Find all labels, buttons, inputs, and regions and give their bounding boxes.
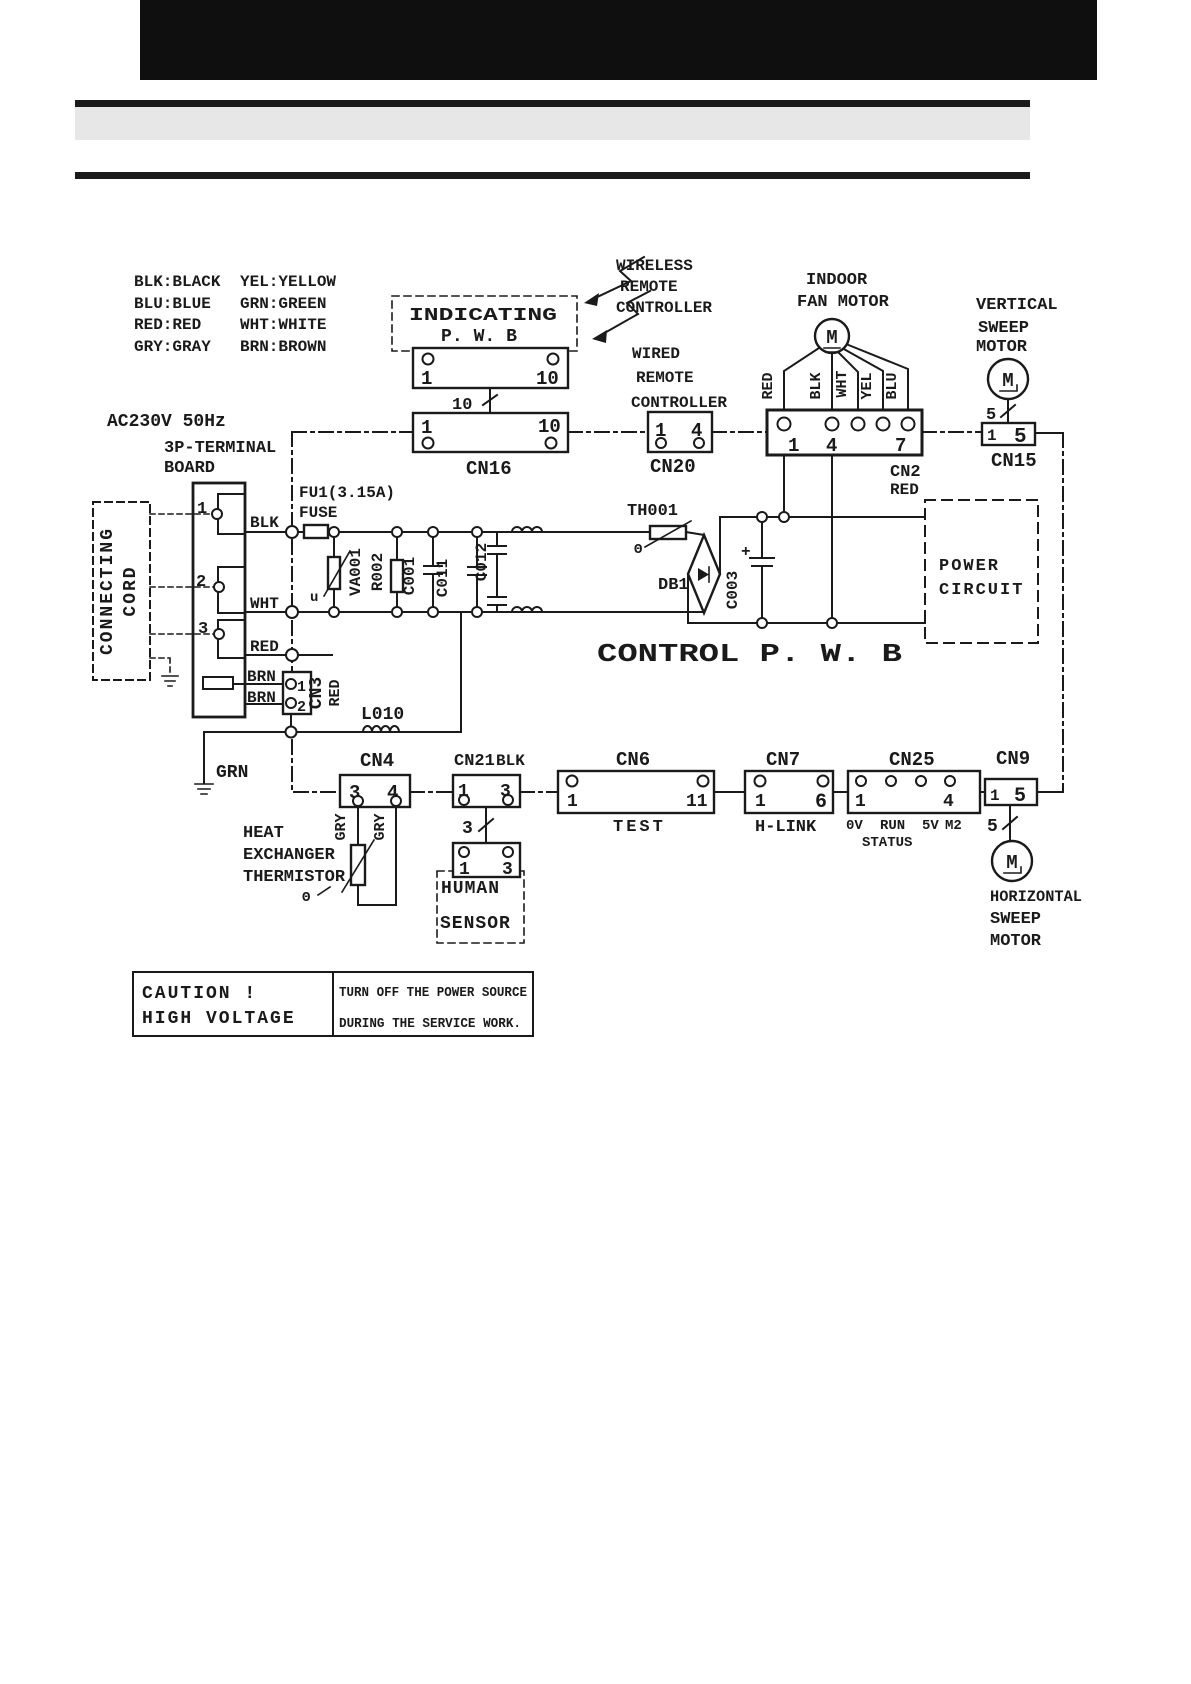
legend-item: BLK:BLACK	[134, 273, 221, 291]
pin-circle	[353, 796, 363, 806]
pin-number: 7	[895, 435, 906, 457]
cn7-label: CN7	[766, 749, 800, 771]
cn3-color: RED	[327, 679, 344, 706]
junction	[329, 527, 339, 537]
junction	[392, 607, 402, 617]
pin-circle	[886, 776, 896, 786]
pin-circle	[826, 418, 839, 431]
title-band	[75, 107, 1030, 140]
pin-circle	[459, 847, 469, 857]
terminal-number: 1	[197, 500, 207, 519]
wired-remote-label: REMOTE	[636, 369, 694, 387]
wire-color-tag: YEL	[859, 372, 876, 399]
wire-color-tag: WHT	[250, 595, 279, 613]
wire-color-tag: RED	[250, 638, 279, 656]
fuse-icon	[304, 525, 328, 538]
human-sensor-label: SENSOR	[440, 914, 511, 934]
cn25-signal: 5V	[922, 818, 939, 834]
cn2-label: CN2	[890, 463, 921, 482]
indicating-pwb: INDICATING P. W. B 1 10 10	[392, 296, 577, 415]
ac-rating: AC230V 50Hz	[107, 412, 226, 432]
theta-symbol: Θ	[302, 890, 310, 906]
cn6-label: CN6	[616, 749, 650, 771]
cn25-signal: RUN	[880, 818, 905, 834]
caution-title: HIGH VOLTAGE	[142, 1009, 296, 1029]
cn21-label: CN21	[454, 752, 495, 771]
wire-color-tag: GRN	[216, 763, 248, 783]
pin-circle	[902, 418, 915, 431]
bundle-count: 5	[987, 817, 998, 837]
terminal-screw	[212, 509, 222, 519]
pin-circle	[694, 438, 704, 448]
junction	[779, 512, 789, 522]
cn25-connector	[848, 771, 980, 813]
legend-item: GRN:GREEN	[240, 295, 326, 313]
mains-input: AC230V 50Hz 3P-TERMINAL BOARD CONNECTING…	[93, 412, 279, 717]
motor-m: M	[1006, 852, 1017, 874]
cn25-signal: M2	[945, 818, 962, 834]
pin-circle	[286, 698, 296, 708]
color-legend: BLK:BLACK BLU:BLUE RED:RED GRY:GRAY YEL:…	[134, 273, 336, 356]
l010-label: L010	[361, 705, 404, 725]
pin-circle	[755, 776, 766, 787]
human-sensor-label: HUMAN	[441, 879, 500, 899]
indicating-pwb-title: INDICATING	[409, 306, 557, 326]
heat-exchanger-label: THERMISTOR	[243, 868, 346, 887]
junction	[757, 618, 767, 628]
wired-remote-controller: WIRED REMOTE CONTROLLER 1 4 CN20	[631, 345, 727, 478]
legend-item: BRN:BROWN	[240, 338, 326, 356]
pin-circle	[567, 776, 578, 787]
pin-number: 6	[815, 791, 827, 814]
legend-item: WHT:WHITE	[240, 316, 326, 334]
legend-item: GRY:GRAY	[134, 338, 211, 356]
terminal-number: 3	[198, 620, 208, 639]
ground-icon	[195, 784, 213, 794]
pin-circle	[778, 418, 791, 431]
pin-circle	[548, 354, 559, 365]
header-bar	[140, 0, 1097, 80]
power-circuit-label: POWER	[939, 557, 1000, 576]
cn9-label: CN9	[996, 748, 1030, 770]
wire-color-tag: GRY	[372, 813, 389, 840]
horizontal-sweep-label: SWEEP	[990, 910, 1041, 929]
pin-circle	[916, 776, 926, 786]
terminal-number: 2	[196, 573, 206, 592]
pwb-terminal	[286, 606, 298, 618]
arrow-head-icon	[584, 293, 599, 306]
pin-number: 5	[1014, 785, 1026, 808]
th001-label: TH001	[627, 502, 678, 521]
pin-number: 1	[788, 435, 799, 457]
heat-exchanger-label: HEAT	[243, 824, 284, 843]
indoor-fan-label: INDOOR	[806, 271, 868, 290]
cn25-signal: STATUS	[862, 835, 912, 851]
pwb-terminal	[286, 649, 298, 661]
cn25-signal: 0V	[846, 818, 863, 834]
component-label: C012	[473, 543, 491, 581]
horizontal-sweep-label: HORIZONTAL	[990, 888, 1082, 906]
junction	[757, 512, 767, 522]
caution-text: TURN OFF THE POWER SOURCE	[339, 985, 527, 1001]
manual-page: BLK:BLACK BLU:BLUE RED:RED GRY:GRAY YEL:…	[0, 0, 1191, 1684]
pin-circle	[856, 776, 866, 786]
pin-number: 2	[297, 699, 306, 716]
pin-circle	[459, 795, 469, 805]
wireless-remote-callout: WIRELESS REMOTE CONTROLLER	[584, 257, 712, 343]
terminal-screw	[214, 582, 224, 592]
cn25-label: CN25	[889, 749, 935, 771]
wire-color-tag: GRY	[333, 813, 350, 840]
pin-number: 1	[297, 679, 306, 696]
pin-circle	[852, 418, 865, 431]
component-label: C011	[434, 559, 452, 597]
pin-circle	[656, 438, 666, 448]
junction	[286, 727, 297, 738]
legend-item: YEL:YELLOW	[240, 273, 336, 291]
pin-circle	[423, 438, 434, 449]
pin-number: 1	[567, 792, 578, 812]
pin-circle	[391, 796, 401, 806]
electrolytic-capacitor-icon	[750, 517, 774, 623]
pin-number: 10	[538, 416, 561, 438]
component-label: R002	[369, 553, 387, 591]
indoor-fan-label: FAN MOTOR	[797, 293, 890, 312]
legend-item: BLU:BLUE	[134, 295, 211, 313]
plus-sign: +	[741, 543, 751, 561]
cn3-section: 1 2 CN3 RED L010 GRN	[195, 612, 461, 794]
indoor-fan-motor: INDOOR FAN MOTOR M RED BLK WHT YEL BLU 1…	[760, 271, 922, 618]
ground-icon	[162, 676, 178, 686]
pin-circle	[503, 795, 513, 805]
pin-number: 1	[987, 427, 997, 445]
fuse-label: FUSE	[299, 504, 337, 522]
cn2-color: RED	[890, 481, 919, 499]
junction	[392, 527, 402, 537]
pin-circle	[286, 679, 296, 689]
cn7-function: H-LINK	[755, 818, 817, 837]
indicating-pwb-title2: P. W. B	[441, 327, 517, 347]
horizontal-sweep-motor: 5 M HORIZONTAL SWEEP MOTOR	[987, 805, 1082, 951]
pin-circle	[818, 776, 829, 787]
vertical-sweep-label: MOTOR	[976, 338, 1028, 357]
cn15-label: CN15	[991, 450, 1037, 472]
terminal-link	[203, 677, 233, 689]
legend-item: RED:RED	[134, 316, 201, 334]
vertical-sweep-label: VERTICAL	[976, 296, 1058, 315]
component-label: VA001	[347, 548, 365, 596]
pin-circle	[423, 354, 434, 365]
cn3-label: CN3	[307, 677, 327, 709]
wireless-remote-label: REMOTE	[620, 278, 678, 296]
db1-label: DB1	[658, 576, 689, 595]
component-label: C003	[724, 571, 742, 609]
terminal-screw	[214, 629, 224, 639]
junction	[827, 618, 837, 628]
motor-m: M	[1002, 370, 1013, 392]
pin-number: 4	[826, 435, 837, 457]
terminal-board-label: 3P-TERMINAL	[164, 439, 276, 458]
pin-number: 5	[1014, 426, 1027, 449]
pin-circle	[503, 847, 513, 857]
caution-text: DURING THE SERVICE WORK.	[339, 1016, 521, 1032]
fuse-label: FU1(3.15A)	[299, 484, 395, 502]
cn21-color: BLK	[496, 752, 525, 770]
connecting-cord-label: CORD	[121, 565, 141, 616]
heat-exchanger-label: EXCHANGER	[243, 846, 336, 865]
wire-color-tag: BLK	[250, 514, 279, 532]
pin-circle	[877, 418, 890, 431]
pin-number: 1	[421, 368, 432, 390]
cn4-label: CN4	[360, 750, 394, 772]
pin-number: 10	[536, 368, 559, 390]
pin-number: 11	[686, 792, 708, 812]
pin-number: 3	[502, 860, 513, 880]
pin-number: 1	[421, 417, 432, 439]
arrow-head-icon	[592, 330, 607, 343]
terminal-board-label: BOARD	[164, 459, 215, 478]
bottom-connector-row: CN4 3 4 CN21 BLK 1 3 3 1 3 HUMAN SENSOR …	[340, 748, 1037, 943]
title-rule-top	[75, 100, 1030, 107]
wired-remote-label: WIRED	[632, 345, 680, 363]
pin-number: 1	[855, 792, 866, 812]
bundle-count: 3	[462, 819, 473, 839]
pin-circle	[546, 438, 557, 449]
junction	[428, 527, 438, 537]
caution-title: CAUTION !	[142, 984, 257, 1004]
pwb-terminal	[286, 526, 298, 538]
cn20-label: CN20	[650, 456, 696, 478]
vertical-sweep-motor: VERTICAL SWEEP MOTOR M 5 1 5 CN15	[976, 296, 1058, 472]
junction	[428, 607, 438, 617]
junction	[329, 607, 339, 617]
junction	[472, 527, 482, 537]
wire-color-tag: BLK	[808, 372, 825, 399]
pin-number: 4	[943, 792, 954, 812]
heat-exchanger-thermistor: Θ GRY GRY HEAT EXCHANGER THERMISTOR	[243, 807, 396, 906]
pin-circle	[945, 776, 955, 786]
wire-color-tag: RED	[760, 372, 777, 399]
control-pwb-title: CONTROL P. W. B	[597, 639, 903, 669]
connecting-cord-label: CONNECTING	[98, 527, 118, 655]
cn16-connector: 1 10 CN16	[413, 413, 568, 480]
junction	[472, 607, 482, 617]
varistor-u: u	[310, 590, 318, 606]
thermistor-icon	[650, 526, 686, 539]
component-label: C001	[401, 557, 419, 595]
power-circuit-label: CIRCUIT	[939, 581, 1024, 600]
cn16-label: CN16	[466, 458, 512, 480]
horizontal-sweep-label: MOTOR	[990, 932, 1042, 951]
wire-color-tag: WHT	[834, 370, 851, 397]
title-rule-bottom	[75, 172, 1030, 179]
wire-color-tag: BLU	[884, 372, 901, 399]
caution-box: CAUTION ! HIGH VOLTAGE TURN OFF THE POWE…	[133, 972, 533, 1036]
wired-remote-label: CONTROLLER	[631, 394, 727, 412]
pin-circle	[698, 776, 709, 787]
motor-m: M	[826, 327, 837, 349]
cn6-function: TEST	[613, 818, 666, 837]
vertical-sweep-label: SWEEP	[978, 319, 1029, 338]
theta-symbol: Θ	[634, 542, 642, 558]
pin-number: 1	[990, 787, 1000, 805]
pin-number: 1	[459, 860, 470, 880]
pin-number: 1	[755, 792, 766, 812]
